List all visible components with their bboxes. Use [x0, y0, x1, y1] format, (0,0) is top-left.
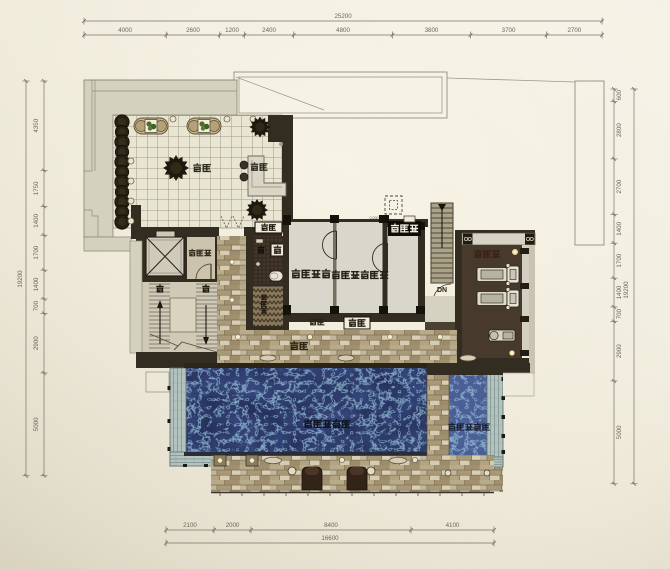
svg-text:19200: 19200 — [17, 270, 24, 288]
svg-text:1400: 1400 — [33, 213, 40, 227]
svg-text:700: 700 — [33, 300, 40, 311]
svg-text:4000: 4000 — [118, 27, 132, 34]
svg-text:1400: 1400 — [616, 221, 623, 235]
svg-text:1400: 1400 — [33, 277, 40, 291]
svg-text:1750: 1750 — [33, 181, 40, 195]
svg-text:4350: 4350 — [33, 118, 40, 132]
svg-text:600: 600 — [616, 89, 623, 100]
svg-text:5000: 5000 — [616, 425, 623, 439]
svg-text:19200: 19200 — [623, 281, 630, 299]
svg-text:2700: 2700 — [567, 27, 581, 34]
svg-text:2700: 2700 — [616, 179, 623, 193]
svg-text:8400: 8400 — [324, 522, 338, 529]
svg-text:5000: 5000 — [33, 417, 40, 431]
svg-text:4800: 4800 — [336, 27, 350, 34]
svg-text:2600: 2600 — [186, 27, 200, 34]
svg-text:2100: 2100 — [183, 522, 197, 529]
svg-text:DN: DN — [437, 287, 447, 294]
svg-text:1200: 1200 — [225, 27, 239, 34]
svg-text:2900: 2900 — [33, 336, 40, 350]
svg-text:2400: 2400 — [262, 27, 276, 34]
svg-text:16600: 16600 — [321, 535, 339, 542]
svg-text:2000: 2000 — [226, 522, 240, 529]
svg-text:1400: 1400 — [616, 285, 623, 299]
svg-text:3700: 3700 — [502, 27, 516, 34]
svg-text:25200: 25200 — [334, 13, 352, 20]
svg-text:3800: 3800 — [425, 27, 439, 34]
svg-text:1700: 1700 — [33, 245, 40, 259]
svg-text:4100: 4100 — [446, 522, 460, 529]
svg-text:2900: 2900 — [616, 344, 623, 358]
svg-text:2800: 2800 — [616, 123, 623, 137]
svg-text:700: 700 — [616, 308, 623, 319]
svg-text:0.000: 0.000 — [370, 216, 379, 220]
svg-text:1700: 1700 — [616, 253, 623, 267]
